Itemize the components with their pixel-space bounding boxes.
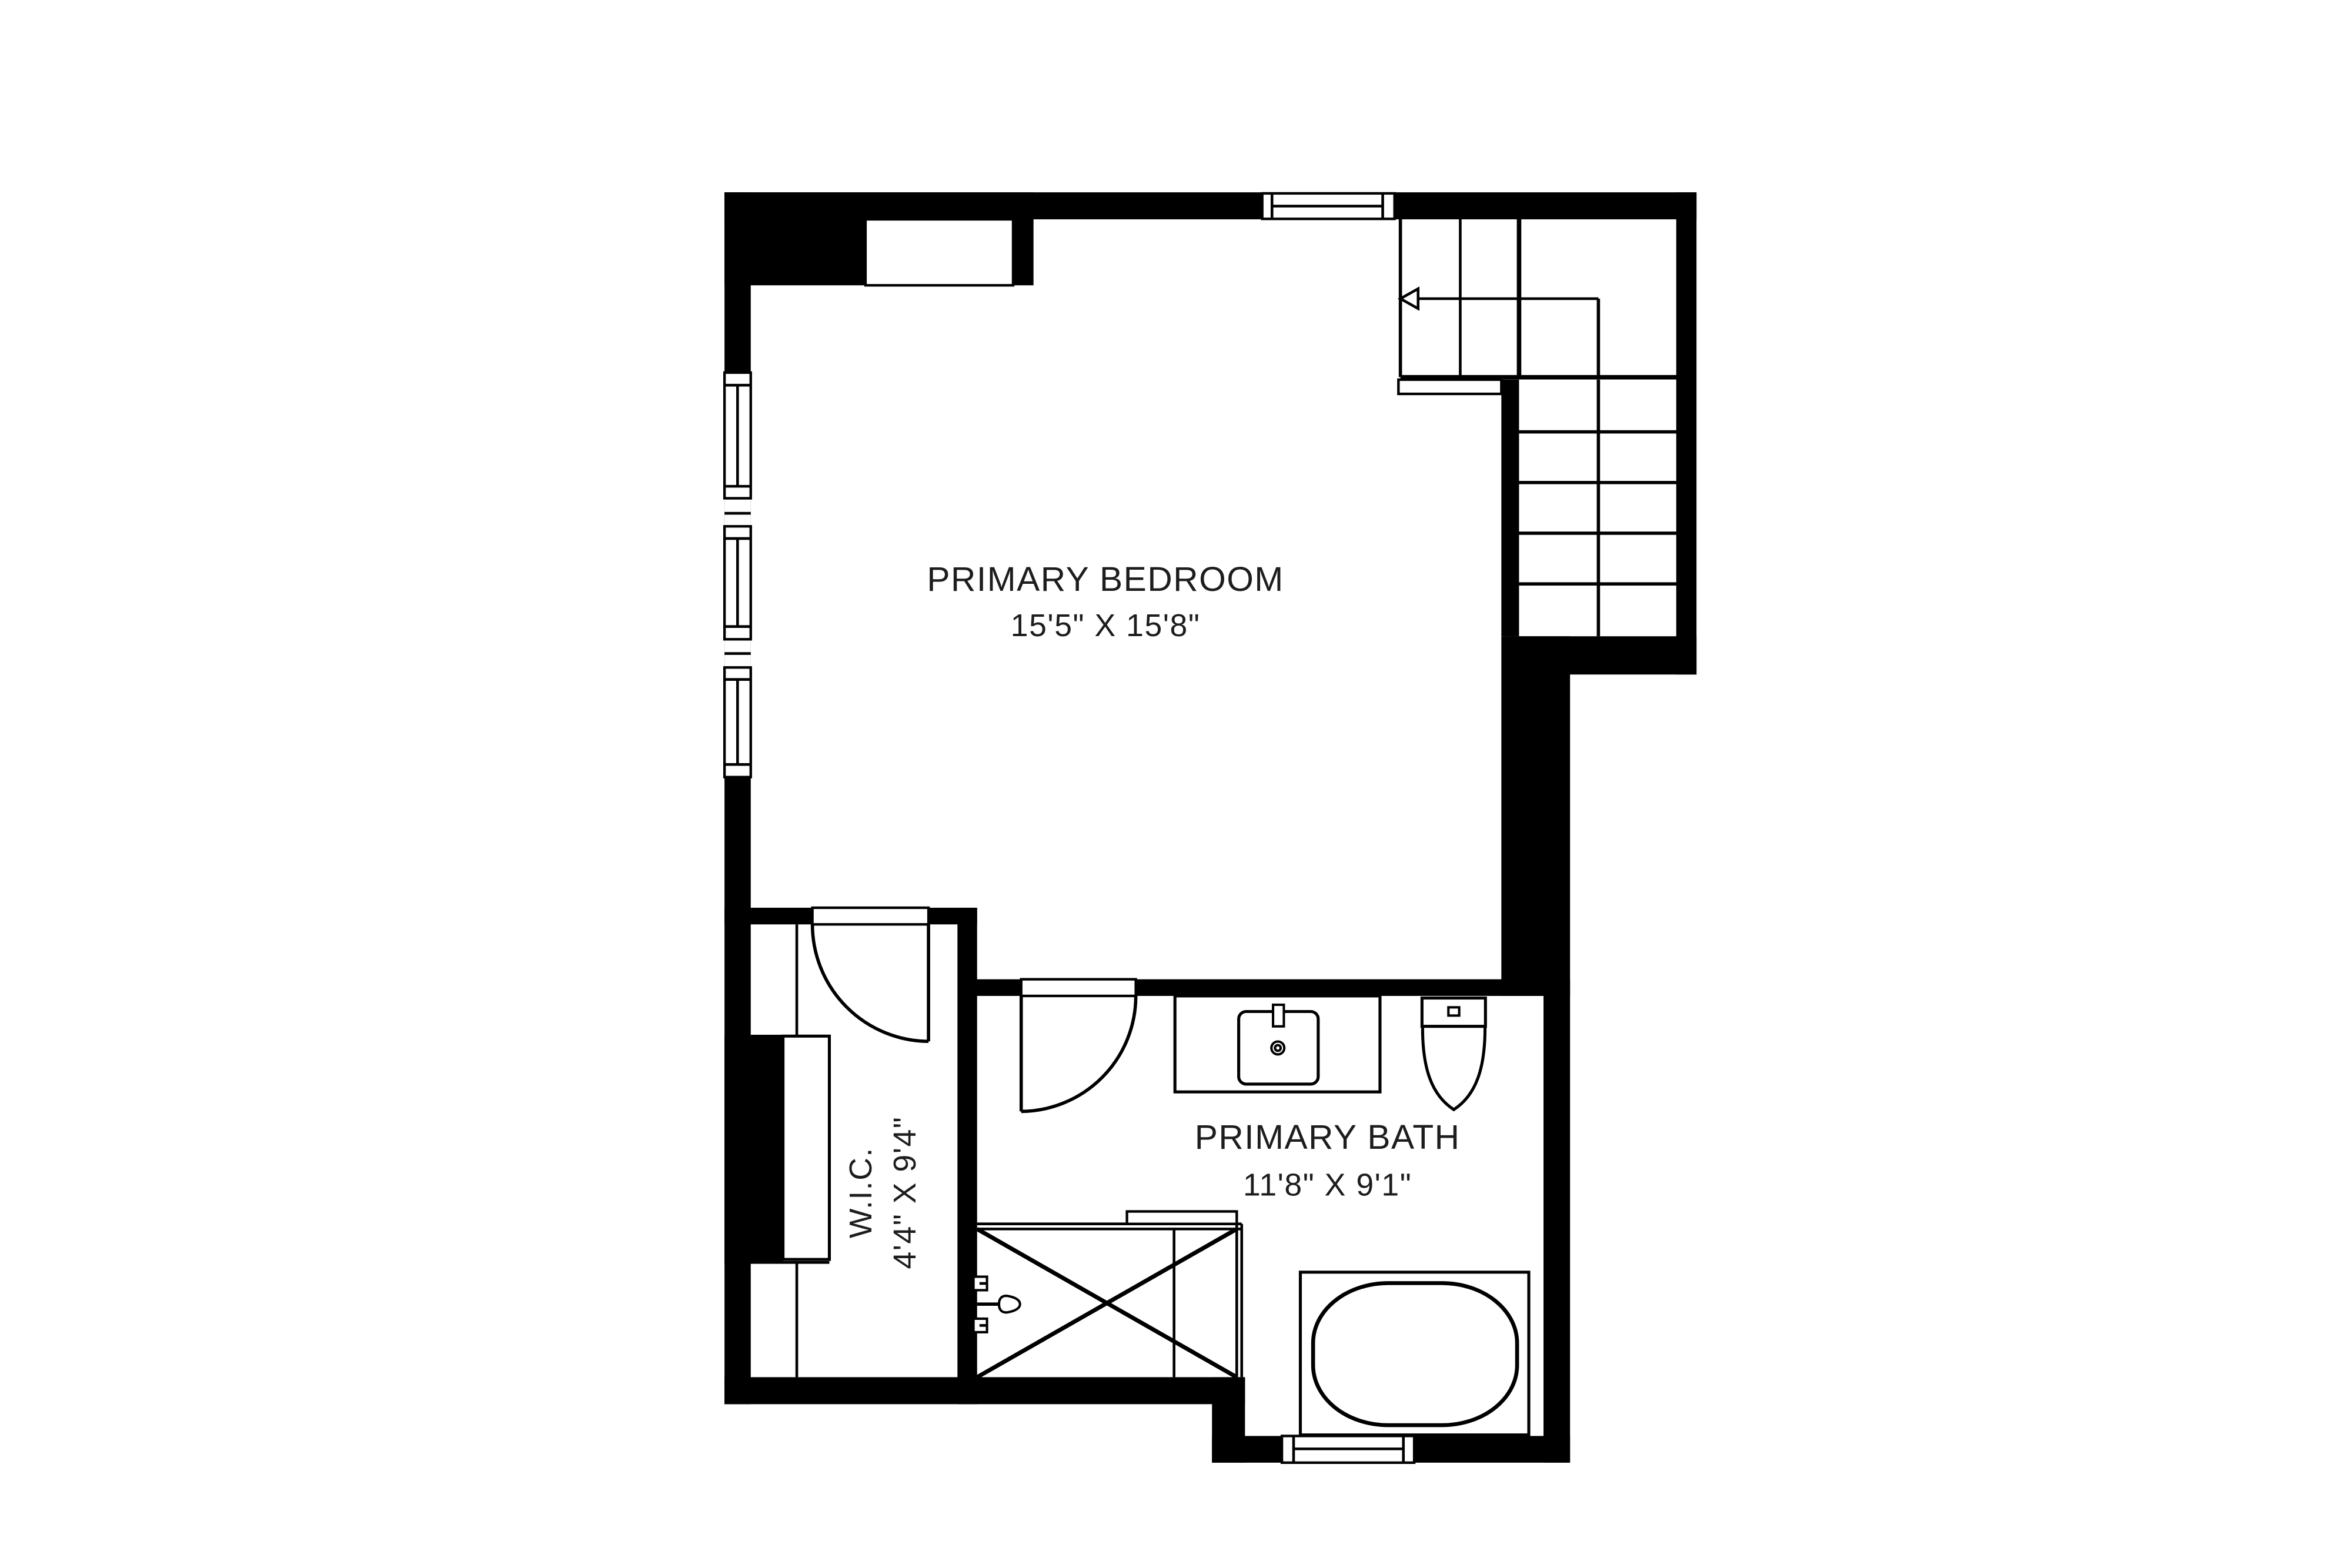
stair-half-wall bbox=[1398, 380, 1501, 394]
bedroom-niche bbox=[866, 219, 1013, 285]
bath-label: PRIMARY BATH bbox=[1195, 1118, 1461, 1156]
window-2 bbox=[724, 526, 751, 639]
left-wall-windows bbox=[724, 373, 751, 777]
walls bbox=[724, 192, 1696, 1463]
flush-button bbox=[1448, 1007, 1459, 1015]
bath-bottom-window bbox=[1282, 1436, 1414, 1462]
toilet bbox=[1422, 998, 1485, 1110]
bath-door-opening bbox=[1021, 979, 1136, 996]
wic-dimensions: 4'4" X 9'4" bbox=[888, 1116, 923, 1269]
wall-bath-north-left bbox=[976, 979, 1021, 996]
wall-bottom-wic bbox=[724, 1377, 1245, 1404]
window-3 bbox=[724, 667, 751, 777]
wall-right-stairs bbox=[1676, 192, 1696, 674]
wic-door bbox=[813, 924, 928, 1041]
drain-icon bbox=[1275, 1045, 1281, 1051]
vanity bbox=[1175, 996, 1380, 1092]
wall-bath-east bbox=[1543, 996, 1570, 1463]
faucet-icon bbox=[1273, 1005, 1284, 1027]
bath-door bbox=[1021, 996, 1136, 1111]
stairs bbox=[1398, 219, 1678, 636]
wall-wic-west-thick bbox=[724, 1036, 783, 1262]
bath-dimensions: 11'8" X 9'1" bbox=[1243, 1168, 1412, 1202]
tub-basin bbox=[1313, 1283, 1517, 1425]
bedroom-dimensions: 15'5" X 15'8" bbox=[1011, 609, 1201, 643]
top-wall-window bbox=[1262, 193, 1395, 219]
wardrobe bbox=[783, 1036, 830, 1259]
bathtub bbox=[1300, 1272, 1529, 1435]
wic-door-opening bbox=[813, 908, 928, 924]
shower bbox=[974, 1212, 1242, 1378]
stair-direction-arrow-icon bbox=[1401, 289, 1599, 309]
wall-slab-east bbox=[1501, 636, 1570, 996]
window-1 bbox=[724, 373, 751, 499]
wall-bath-north-right bbox=[1136, 979, 1571, 996]
door-swing-arc bbox=[813, 924, 928, 1041]
wall-stairs-west bbox=[1501, 380, 1519, 636]
toilet-bowl bbox=[1422, 1027, 1485, 1110]
wic-label: W.I.C. bbox=[844, 1147, 878, 1238]
bedroom-label: PRIMARY BEDROOM bbox=[927, 560, 1284, 599]
shower-valve-icon bbox=[974, 1277, 1020, 1332]
floor-plan: PRIMARY BEDROOM 15'5" X 15'8" PRIMARY BA… bbox=[0, 0, 2352, 1568]
shower-door-panel bbox=[1127, 1212, 1237, 1224]
shower-handle-icon bbox=[999, 1296, 1020, 1312]
door-swing-arc bbox=[1021, 996, 1136, 1111]
